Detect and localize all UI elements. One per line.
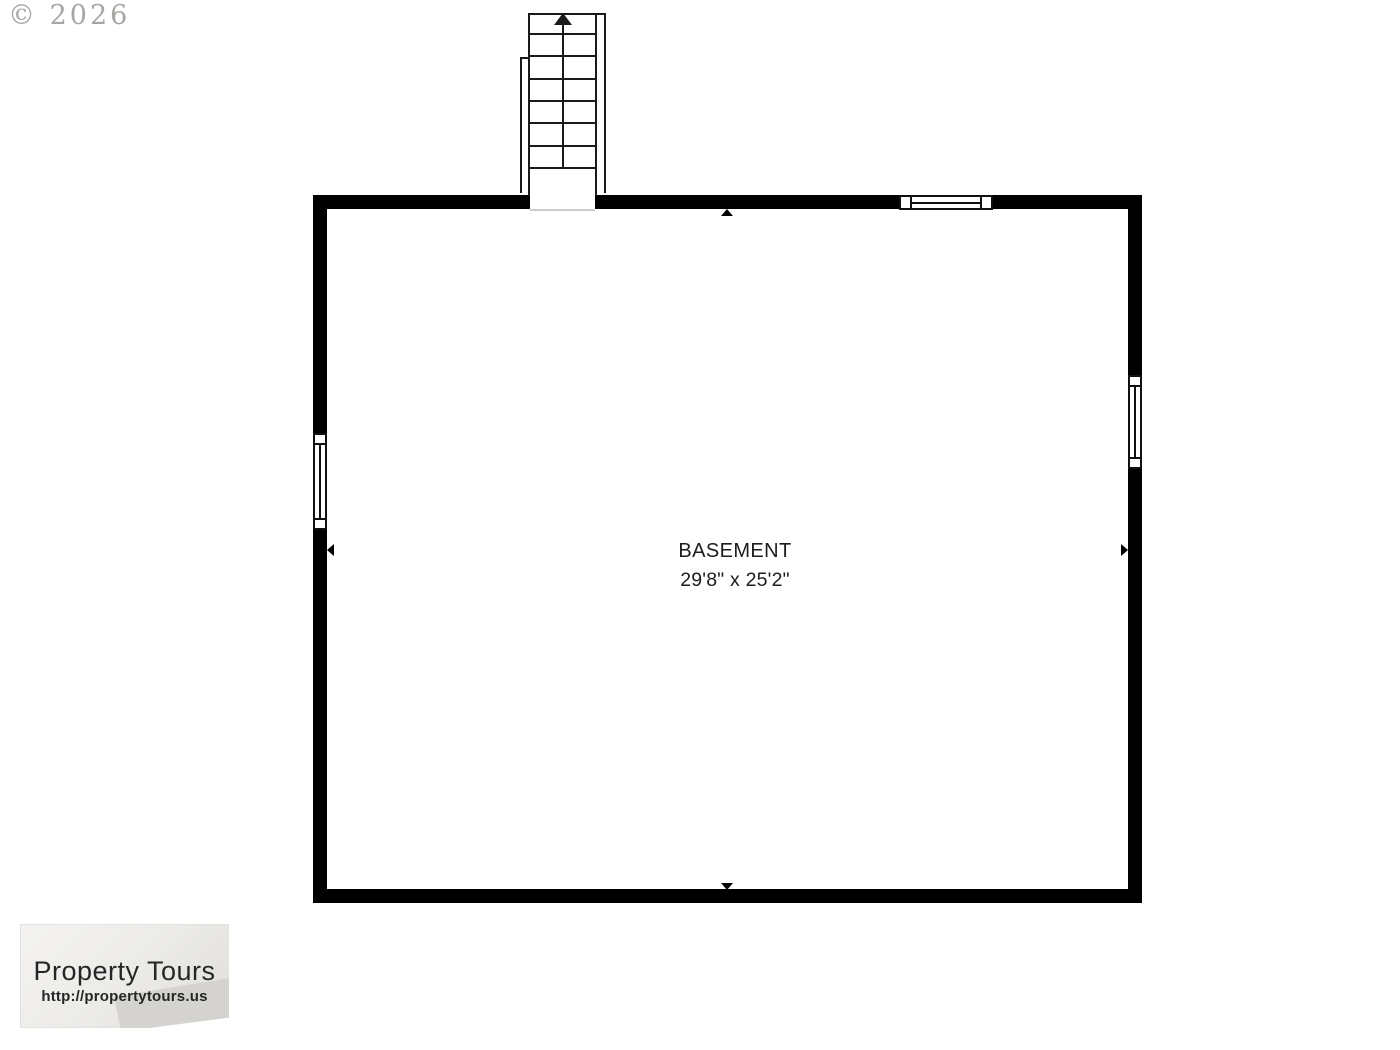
direction-marker-down-icon: [721, 883, 733, 890]
stair-handrail: [520, 57, 528, 193]
room-dimensions: 29'8" x 25'2": [335, 569, 1135, 592]
direction-marker-up-icon: [721, 209, 733, 216]
window-cap: [980, 197, 982, 208]
property-tours-logo: Property Tours http://propertytours.us: [20, 924, 229, 1028]
window-right-wall-icon: [1128, 375, 1142, 469]
window-cap: [1130, 457, 1140, 459]
room-label: BASEMENT 29'8" x 25'2": [335, 540, 1135, 592]
window-cap: [315, 518, 325, 520]
window-pane-line: [319, 445, 321, 518]
direction-marker-left-icon: [327, 544, 334, 556]
wall-top: [313, 195, 1142, 209]
logo-title: Property Tours: [20, 956, 229, 987]
stair-threshold-line: [530, 209, 595, 211]
window-pane-line: [912, 202, 980, 204]
logo-url: http://propertytours.us: [20, 988, 229, 1005]
stair-tread: [530, 167, 595, 169]
stair-center-line: [562, 23, 564, 167]
stair-up-arrow-icon: [554, 13, 572, 25]
window-top-wall-icon: [899, 195, 993, 210]
floor-plan-page: © 2026: [0, 0, 1400, 1050]
stair-opening: [530, 195, 595, 209]
logo-text: Property Tours http://propertytours.us: [20, 956, 229, 1005]
copyright-watermark: © 2026: [8, 0, 130, 31]
wall-bottom: [313, 889, 1142, 903]
room-name: BASEMENT: [335, 540, 1135, 563]
wall-left: [313, 195, 327, 903]
window-pane-line: [1134, 387, 1136, 457]
window-left-wall-icon: [313, 433, 327, 530]
